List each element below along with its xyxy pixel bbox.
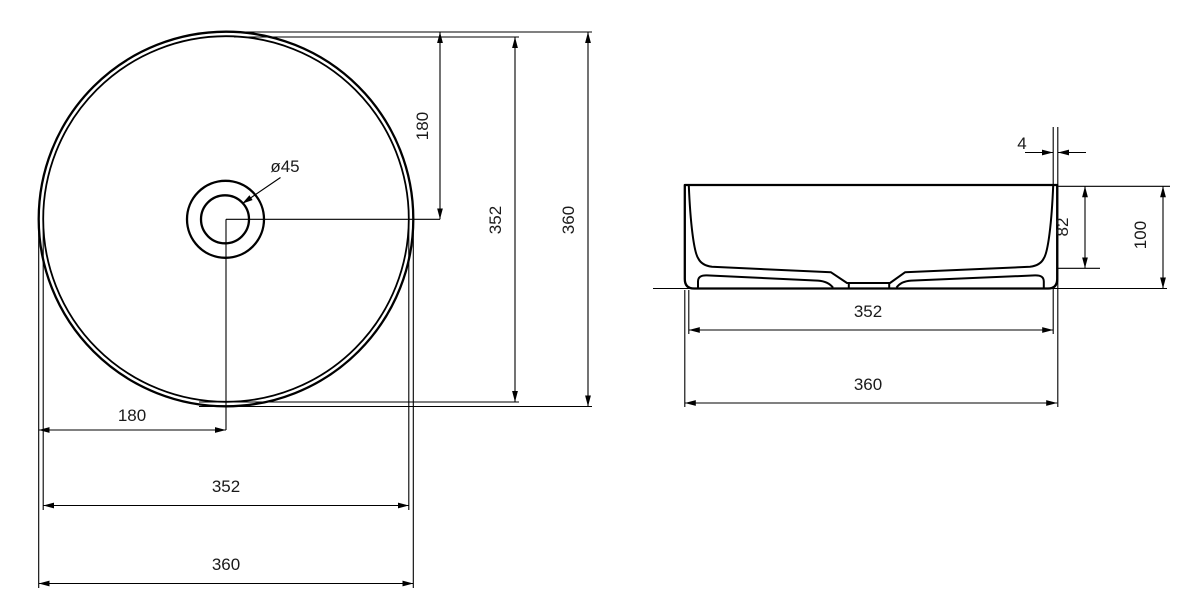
dim-label-352-side: 352 [854, 302, 882, 321]
drain-leader-line [242, 178, 281, 204]
dim-label-drain: ø45 [270, 157, 299, 176]
dim-radius-horizontal: 180 [39, 406, 226, 430]
basin-section-outline [685, 185, 1057, 289]
dim-outer-width: 360 [685, 375, 1057, 403]
dim-label-180-horizontal: 180 [118, 406, 146, 425]
dim-label-360-horizontal: 360 [212, 555, 240, 574]
technical-drawing: 180 352 360 ø45 180 352 360 [0, 0, 1183, 614]
dim-overall-height: 100 [1131, 186, 1163, 288]
top-view: 180 352 360 ø45 180 352 360 [39, 32, 592, 588]
side-view: 4 82 100 352 360 [653, 127, 1170, 407]
dim-label-360-vertical: 360 [559, 206, 578, 234]
dim-label-82: 82 [1053, 218, 1072, 237]
dim-rim-thickness: 4 [1017, 134, 1086, 153]
dim-label-180-vertical: 180 [413, 112, 432, 140]
dim-inner-diameter-vertical: 352 [486, 37, 515, 402]
dim-label-352-vertical: 352 [486, 206, 505, 234]
dim-label-100: 100 [1131, 221, 1150, 249]
dim-inner-diameter-horizontal: 352 [43, 477, 409, 506]
dim-label-4: 4 [1017, 134, 1026, 153]
dim-label-360-side: 360 [854, 375, 882, 394]
dim-outer-diameter-horizontal: 360 [39, 555, 414, 584]
basin-outer-profile [685, 185, 1057, 289]
dim-radius-vertical: 180 [413, 32, 440, 219]
drawing-canvas: 180 352 360 ø45 180 352 360 [0, 0, 1183, 614]
dim-drain-leader: ø45 [242, 157, 300, 204]
dim-outer-diameter-vertical: 360 [559, 32, 588, 407]
dim-inner-width: 352 [689, 302, 1053, 330]
extension-lines-top-view [39, 32, 592, 588]
dim-label-352-horizontal: 352 [212, 477, 240, 496]
